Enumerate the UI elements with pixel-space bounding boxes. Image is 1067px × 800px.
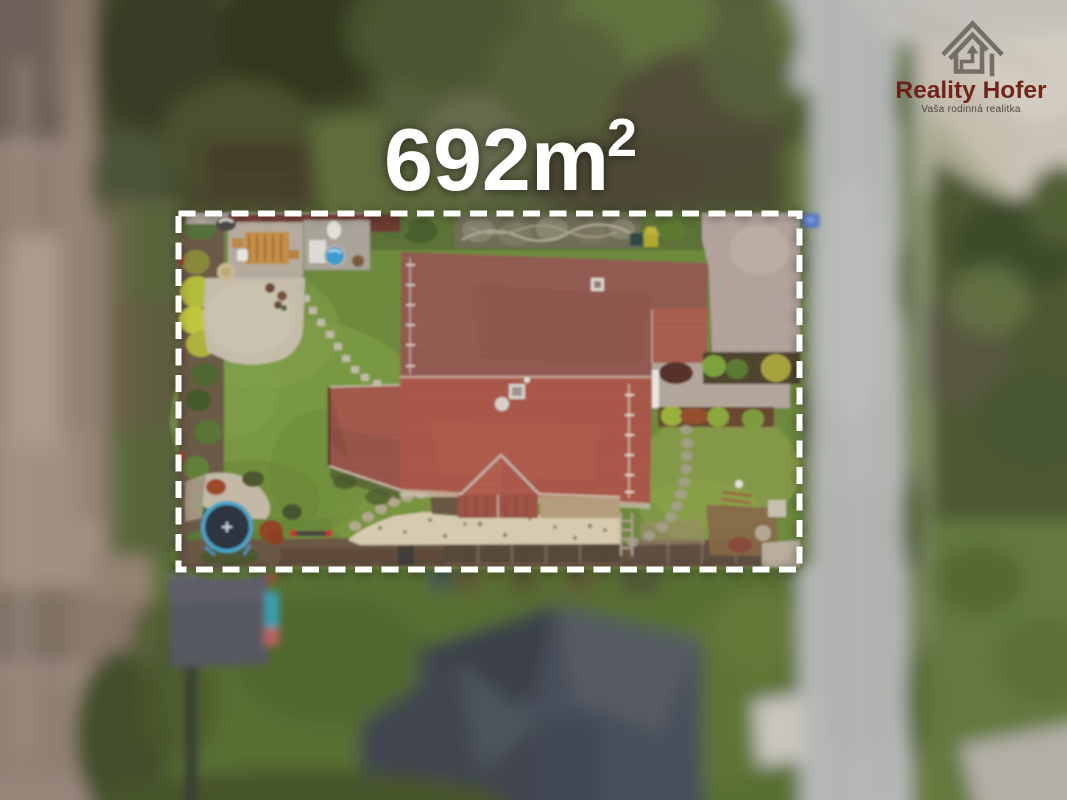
svg-text:Reality Hofer: Reality Hofer	[895, 77, 1047, 104]
svg-text:692m: 692m	[384, 110, 609, 209]
svg-text:2: 2	[607, 108, 637, 168]
svg-text:Vaša rodinná realitka: Vaša rodinná realitka	[921, 104, 1021, 115]
